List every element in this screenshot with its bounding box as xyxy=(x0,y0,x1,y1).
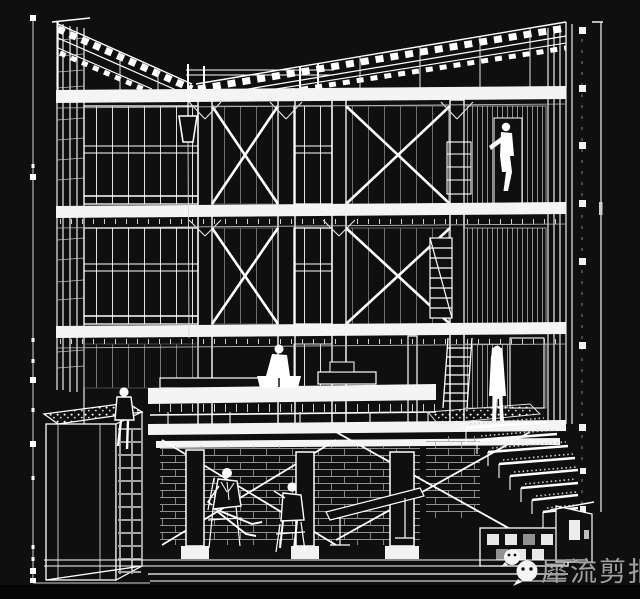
section-perspective-drawing: 犀流剪报 xyxy=(0,0,640,599)
architectural-drawing-canvas: 犀流剪报 xyxy=(0,0,640,599)
stair-side-hut xyxy=(550,502,594,562)
left-scale-line xyxy=(30,15,36,583)
right-reference-line xyxy=(592,22,603,512)
right-level-rod xyxy=(579,27,586,552)
column-plinths xyxy=(181,546,419,559)
floor2-windows xyxy=(84,228,546,324)
floor3-windows xyxy=(84,106,546,204)
bottom-bar xyxy=(0,585,640,599)
watermark-text: 犀流剪报 xyxy=(541,557,640,587)
floor2-ladder-rack xyxy=(430,238,452,318)
